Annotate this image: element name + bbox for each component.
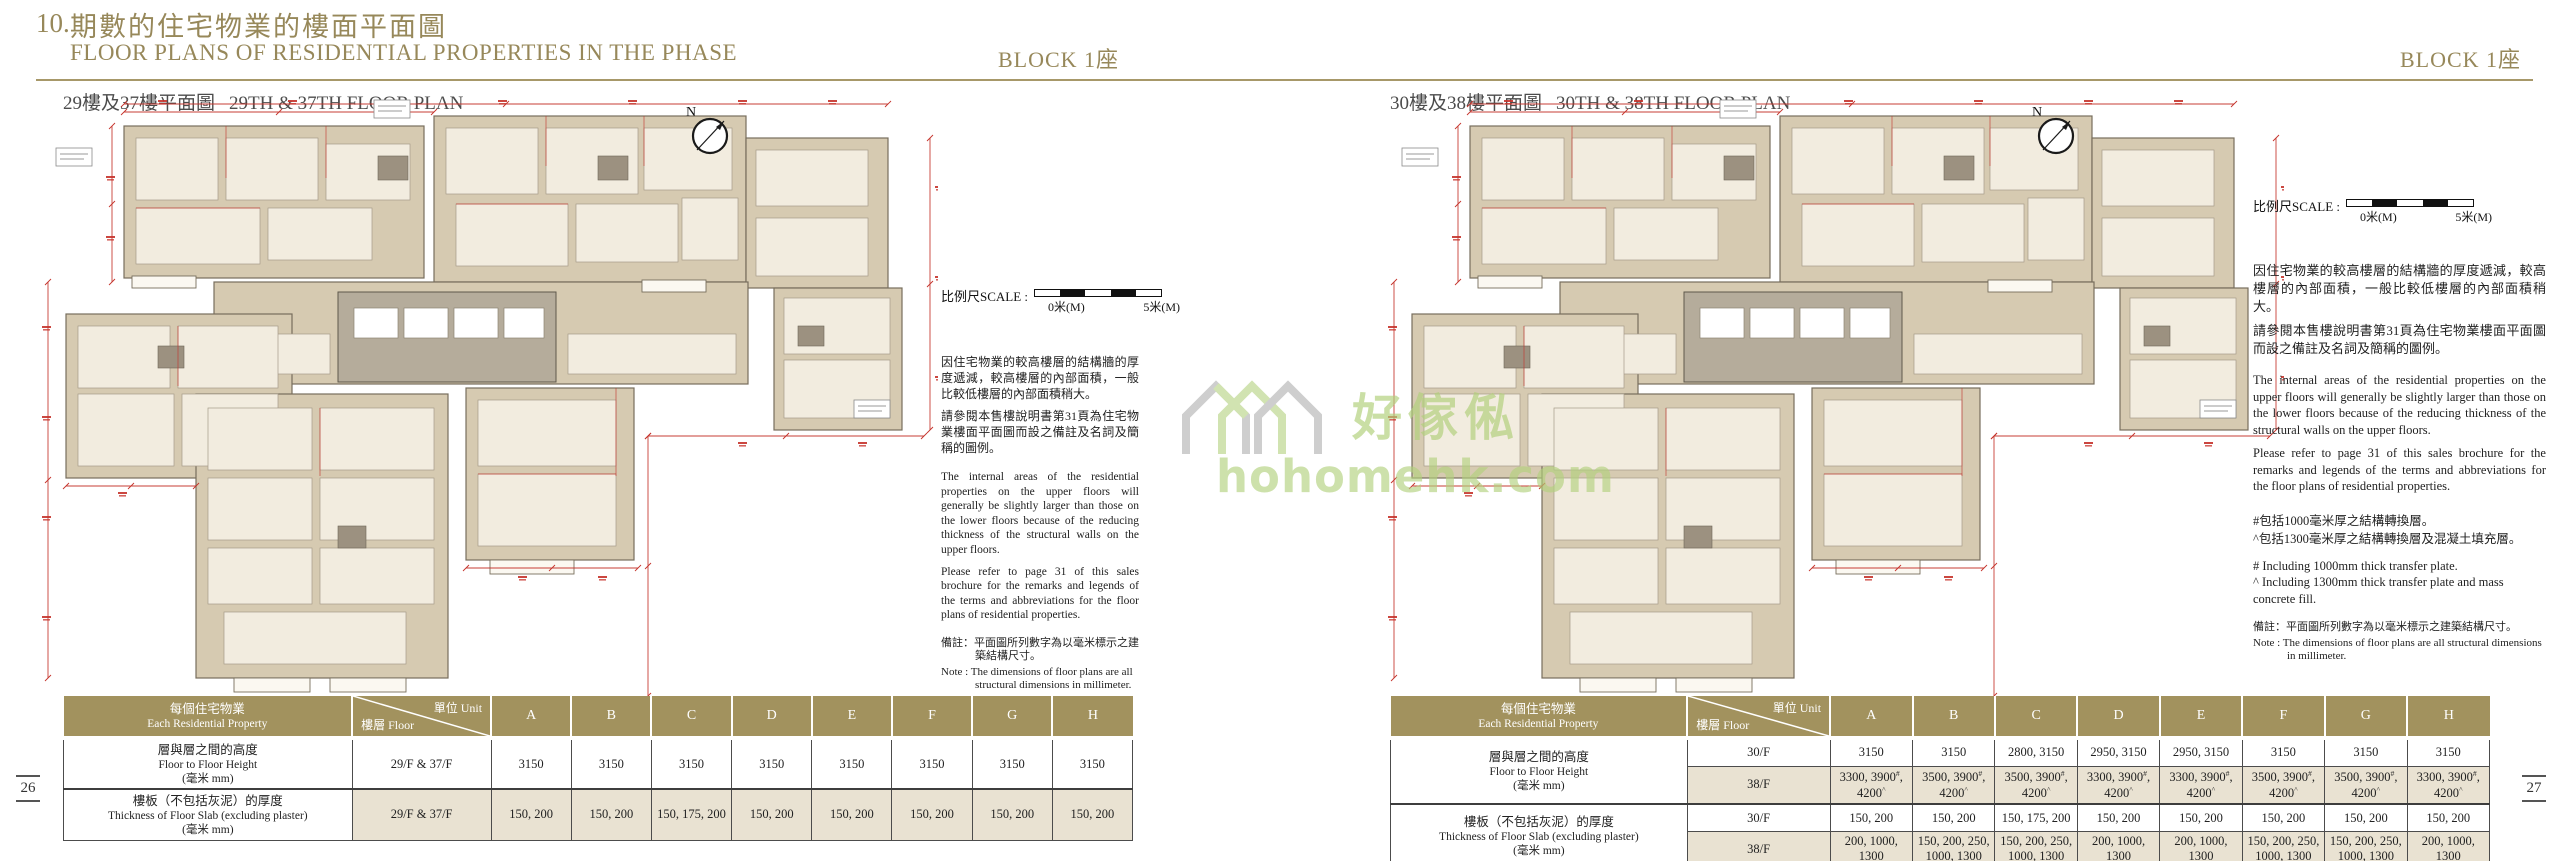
header-unit-h: H	[1052, 696, 1132, 738]
value-cell-e: 2950, 3150	[2160, 738, 2242, 766]
remark-paragraph-en: The internal areas of the residential pr…	[941, 470, 1139, 558]
footnote-en: ^ Including 1300mm thick transfer plate …	[2253, 574, 2546, 607]
header-unit-h: H	[2407, 696, 2489, 738]
remark-paragraph-zh: 請參閱本售樓說明書第31頁為住宅物業樓面平面圖而設之備註及名詞及簡稱的圖例。	[941, 408, 1139, 456]
floor-cell: 29/F & 37/F	[352, 789, 491, 840]
scale-bar: 0米(M) 5米(M)	[2346, 199, 2492, 225]
value-cell-d: 150, 200	[732, 789, 812, 840]
value-cell-c: 150, 175, 200	[651, 789, 731, 840]
value-cell-f: 150, 200	[2242, 804, 2324, 832]
value-cell-g: 150, 200, 250, 1000, 1300	[2325, 832, 2407, 861]
page-number-right: 27	[2520, 772, 2548, 805]
floor-cell: 29/F & 37/F	[352, 738, 491, 789]
value-cell-g: 150, 200	[2325, 804, 2407, 832]
floor-data-table-left: 每個住宅物業Each Residential Property單位 Unit樓層…	[63, 696, 1133, 841]
value-cell-g: 3150	[972, 738, 1052, 789]
value-cell-e: 3150	[812, 738, 892, 789]
value-cell-g: 150, 200	[972, 789, 1052, 840]
floor-plan-drawing-right: N	[1384, 96, 2284, 696]
value-cell-a: 150, 200	[491, 789, 571, 840]
remark-paragraph-zh: 請參閱本售樓說明書第31頁為住宅物業樓面平面圖而設之備註及名詞及簡稱的圖例。	[2253, 322, 2546, 358]
value-cell-h: 150, 200	[2407, 804, 2489, 832]
footnote-zh: ^包括1300毫米厚之結構轉換層及混凝土填充層。	[2253, 530, 2546, 548]
value-cell-c: 2800, 3150	[1995, 738, 2077, 766]
value-cell-e: 200, 1000, 1300	[2160, 832, 2242, 861]
scale-end: 5米(M)	[1143, 298, 1180, 315]
value-cell-c: 150, 175, 200	[1995, 804, 2077, 832]
value-cell-e: 3300, 3900#, 4200^	[2160, 766, 2242, 804]
page-title-zh: 期數的住宅物業的樓面平面圖	[70, 5, 447, 44]
svg-text:N: N	[686, 105, 696, 120]
value-cell-f: 3150	[2242, 738, 2324, 766]
floor-data-table-right: 每個住宅物業Each Residential Property單位 Unit樓層…	[1390, 696, 2490, 861]
value-cell-e: 150, 200	[812, 789, 892, 840]
value-cell-d: 3300, 3900#, 4200^	[2077, 766, 2159, 804]
header-unit-e: E	[2160, 696, 2242, 738]
scale-label: 比例尺SCALE :	[941, 286, 1028, 305]
row-label: 樓板（不包括灰泥）的厚度Thickness of Floor Slab (exc…	[1391, 804, 1688, 861]
dimension-note-zh: 備註：平面圖所列數字為以毫米標示之建築結構尺寸。	[2253, 621, 2546, 635]
scale-end: 5米(M)	[2455, 208, 2492, 225]
floor-plan-drawing-left: N	[38, 96, 938, 696]
footnote-en: # Including 1000mm thick transfer plate.	[2253, 558, 2546, 575]
row-label: 層與層之間的高度Floor to Floor Height(毫米 mm)	[64, 738, 353, 789]
row-label: 層與層之間的高度Floor to Floor Height(毫米 mm)	[1391, 738, 1688, 804]
dimension-note-en: Note : The dimensions of floor plans are…	[941, 666, 1139, 693]
remarks-text: 因住宅物業的較高樓層的結構牆的厚度遞減，較高樓層的內部面積，一般比較低樓層的內部…	[941, 354, 1139, 693]
header-property: 每個住宅物業Each Residential Property	[1391, 696, 1688, 738]
header-unit-e: E	[812, 696, 892, 738]
value-cell-a: 150, 200	[1830, 804, 1912, 832]
header-property: 每個住宅物業Each Residential Property	[64, 696, 353, 738]
page-number-rule	[2522, 800, 2546, 802]
value-cell-a: 3150	[491, 738, 571, 789]
value-cell-d: 3150	[732, 738, 812, 789]
header-unit-c: C	[651, 696, 731, 738]
remarks-text: 因住宅物業的較高樓層的結構牆的厚度遞減，較高樓層的內部面積，一般比較低樓層的內部…	[2253, 262, 2546, 664]
value-cell-h: 150, 200	[1052, 789, 1132, 840]
floor-cell: 38/F	[1687, 766, 1830, 804]
header-unit-g: G	[2325, 696, 2407, 738]
page-number-left: 26	[14, 772, 42, 805]
page-number-rule	[16, 775, 40, 777]
value-cell-d: 2950, 3150	[2077, 738, 2159, 766]
remark-paragraph-en: Please refer to page 31 of this sales br…	[2253, 445, 2546, 495]
header-unit-c: C	[1995, 696, 2077, 738]
page-number-value: 26	[14, 780, 42, 797]
scale-start: 0米(M)	[1048, 298, 1085, 315]
brochure-spread: 10. 期數的住宅物業的樓面平面圖 FLOOR PLANS OF RESIDEN…	[0, 0, 2560, 861]
value-cell-a: 3300, 3900#, 4200^	[1830, 766, 1912, 804]
header-unit-d: D	[732, 696, 812, 738]
floor-cell: 38/F	[1687, 832, 1830, 861]
value-cell-f: 3150	[892, 738, 972, 789]
page-number-rule	[16, 800, 40, 802]
header-unit-a: A	[1830, 696, 1912, 738]
residential-property-table: 每個住宅物業Each Residential Property單位 Unit樓層…	[1390, 696, 2490, 861]
value-cell-b: 150, 200	[1913, 804, 1995, 832]
value-cell-h: 3150	[2407, 738, 2489, 766]
remark-paragraph-zh: 因住宅物業的較高樓層的結構牆的厚度遞減，較高樓層的內部面積，一般比較低樓層的內部…	[2253, 262, 2546, 316]
value-cell-g: 3500, 3900#, 4200^	[2325, 766, 2407, 804]
section-number: 10.	[36, 8, 70, 39]
floor-cell: 30/F	[1687, 738, 1830, 766]
value-cell-e: 150, 200	[2160, 804, 2242, 832]
floor-cell: 30/F	[1687, 804, 1830, 832]
header-unit-g: G	[972, 696, 1052, 738]
value-cell-f: 150, 200	[892, 789, 972, 840]
value-cell-g: 3150	[2325, 738, 2407, 766]
block-label-right: BLOCK 1座	[2400, 42, 2521, 74]
value-cell-d: 200, 1000, 1300	[2077, 832, 2159, 861]
value-cell-b: 3500, 3900#, 4200^	[1913, 766, 1995, 804]
value-cell-a: 200, 1000, 1300	[1830, 832, 1912, 861]
dimension-note-zh: 備註：平面圖所列數字為以毫米標示之建築結構尺寸。	[941, 637, 1139, 664]
value-cell-b: 150, 200	[571, 789, 651, 840]
header-unit-f: F	[2242, 696, 2324, 738]
residential-property-table: 每個住宅物業Each Residential Property單位 Unit樓層…	[63, 696, 1133, 841]
value-cell-f: 150, 200, 250, 1000, 1300	[2242, 832, 2324, 861]
value-cell-c: 3500, 3900#, 4200^	[1995, 766, 2077, 804]
page-number-value: 27	[2520, 780, 2548, 797]
value-cell-b: 3150	[1913, 738, 1995, 766]
value-cell-b: 150, 200, 250, 1000, 1300	[1913, 832, 1995, 861]
header-unit-b: B	[571, 696, 651, 738]
watermark-house-logo	[1178, 372, 1338, 456]
header-unit-b: B	[1913, 696, 1995, 738]
value-cell-h: 200, 1000, 1300	[2407, 832, 2489, 861]
header-unit-f: F	[892, 696, 972, 738]
value-cell-a: 3150	[1830, 738, 1912, 766]
row-label: 樓板（不包括灰泥）的厚度Thickness of Floor Slab (exc…	[64, 789, 353, 840]
scale-start: 0米(M)	[2360, 208, 2397, 225]
value-cell-c: 150, 200, 250, 1000, 1300	[1995, 832, 2077, 861]
scale-indicator: 比例尺SCALE : 0米(M) 5米(M)	[941, 286, 1180, 315]
dimension-note-en: Note : The dimensions of floor plans are…	[2253, 637, 2546, 664]
page-number-rule	[2522, 775, 2546, 777]
block-label-left: BLOCK 1座	[998, 42, 1119, 74]
value-cell-h: 3150	[1052, 738, 1132, 789]
header-unit-d: D	[2077, 696, 2159, 738]
scale-indicator: 比例尺SCALE : 0米(M) 5米(M)	[2253, 196, 2492, 225]
footnote-zh: #包括1000毫米厚之結構轉換層。	[2253, 512, 2546, 530]
header-rule	[36, 79, 2533, 81]
scale-bar: 0米(M) 5米(M)	[1034, 289, 1180, 315]
value-cell-d: 150, 200	[2077, 804, 2159, 832]
header-floor-unit: 單位 Unit樓層 Floor	[1687, 696, 1830, 738]
value-cell-c: 3150	[651, 738, 731, 789]
page-title-en: FLOOR PLANS OF RESIDENTIAL PROPERTIES IN…	[70, 40, 737, 66]
value-cell-b: 3150	[571, 738, 651, 789]
value-cell-f: 3500, 3900#, 4200^	[2242, 766, 2324, 804]
remark-paragraph-zh: 因住宅物業的較高樓層的結構牆的厚度遞減，較高樓層的內部面積，一般比較低樓層的內部…	[941, 354, 1139, 402]
remark-paragraph-en: Please refer to page 31 of this sales br…	[941, 565, 1139, 623]
header-unit-a: A	[491, 696, 571, 738]
remark-paragraph-en: The internal areas of the residential pr…	[2253, 372, 2546, 438]
svg-text:N: N	[2032, 105, 2042, 120]
scale-label: 比例尺SCALE :	[2253, 196, 2340, 215]
header-floor-unit: 單位 Unit樓層 Floor	[352, 696, 491, 738]
value-cell-h: 3300, 3900#, 4200^	[2407, 766, 2489, 804]
